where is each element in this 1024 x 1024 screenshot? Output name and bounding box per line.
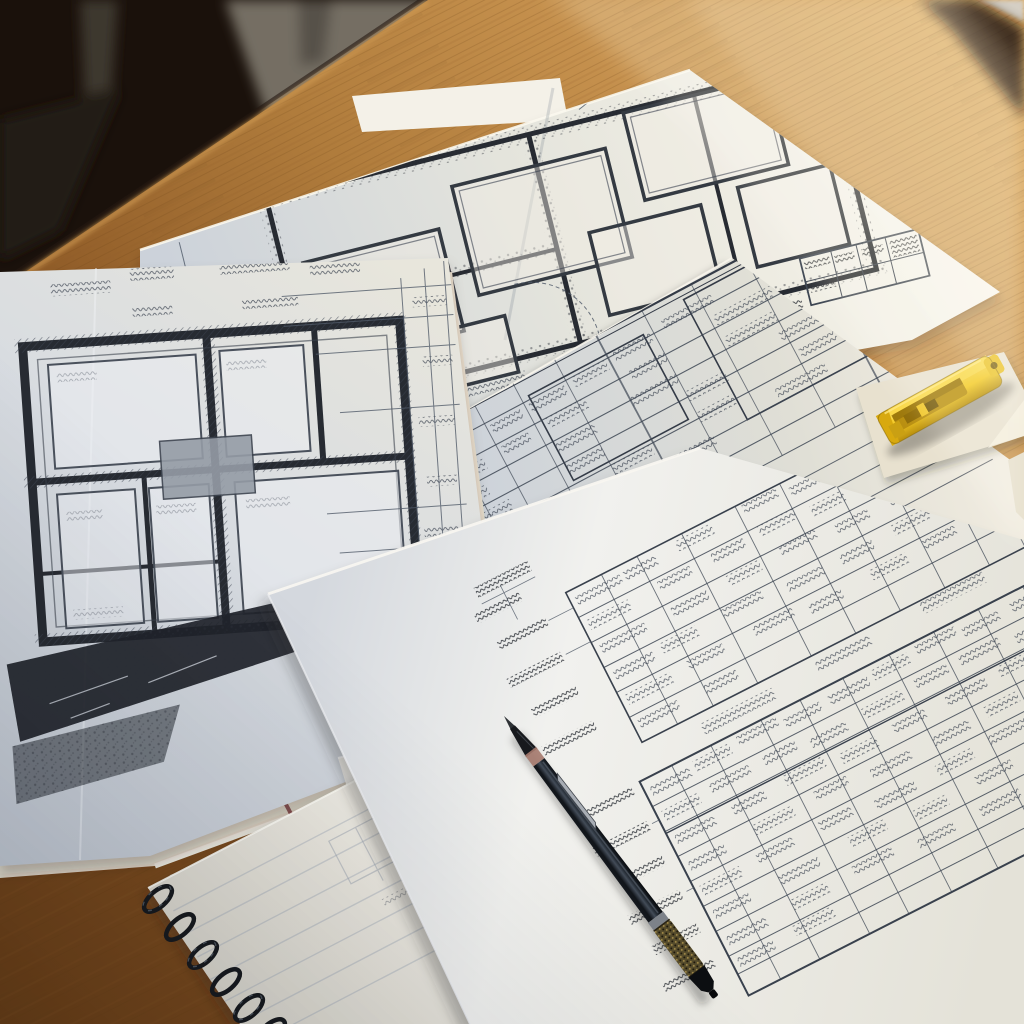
photo-scene bbox=[0, 0, 1024, 1024]
corner-shade-overlay bbox=[0, 0, 1024, 1024]
scene-canvas bbox=[0, 0, 1024, 1024]
